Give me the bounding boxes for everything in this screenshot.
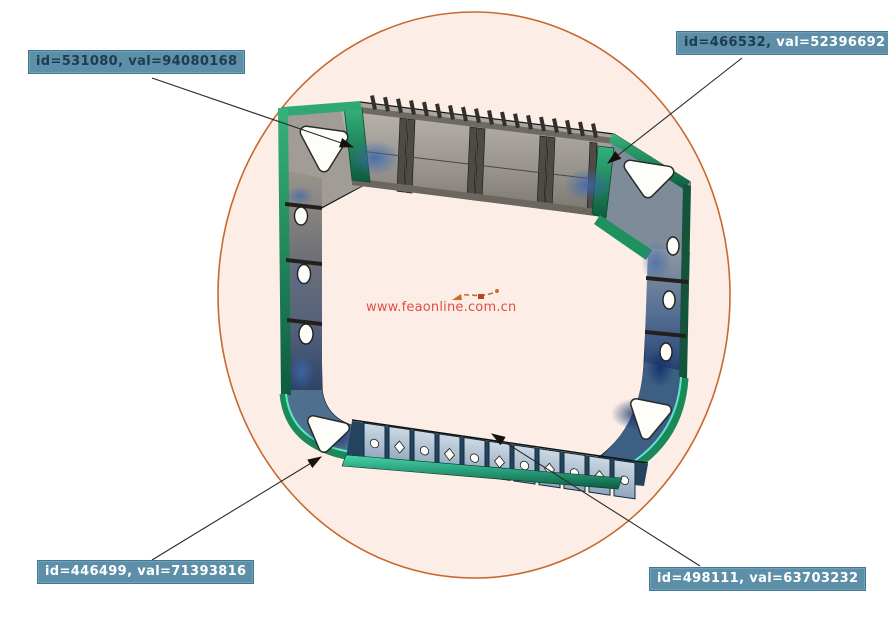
annotation-label-top-right[interactable]: id=466532, val=52396692 — [676, 31, 888, 55]
annotation-val-text: val=71393816 — [137, 564, 246, 579]
annotation-label-bottom-left[interactable]: id=446499, val=71393816 — [37, 560, 254, 584]
annotation-id-text: id=446499, — [45, 564, 132, 579]
annotation-val-text: val=52396692 — [776, 35, 885, 50]
annotation-val-text: val=94080168 — [128, 54, 237, 69]
annotation-label-bottom-right[interactable]: id=498111, val=63703232 — [649, 567, 866, 591]
annotation-id-text: id=531080, — [36, 54, 123, 69]
fea-viewport[interactable]: www.feaonline.com.cn id=531080, val=9408… — [0, 0, 888, 627]
annotation-id-text: id=466532, — [684, 35, 771, 50]
annotation-label-top-left[interactable]: id=531080, val=94080168 — [28, 50, 245, 74]
annotation-val-text: val=63703232 — [749, 571, 858, 586]
watermark-scribble-icon — [449, 286, 503, 306]
annotation-id-text: id=498111, — [657, 571, 744, 586]
leader-line-bottom-left — [152, 457, 321, 560]
